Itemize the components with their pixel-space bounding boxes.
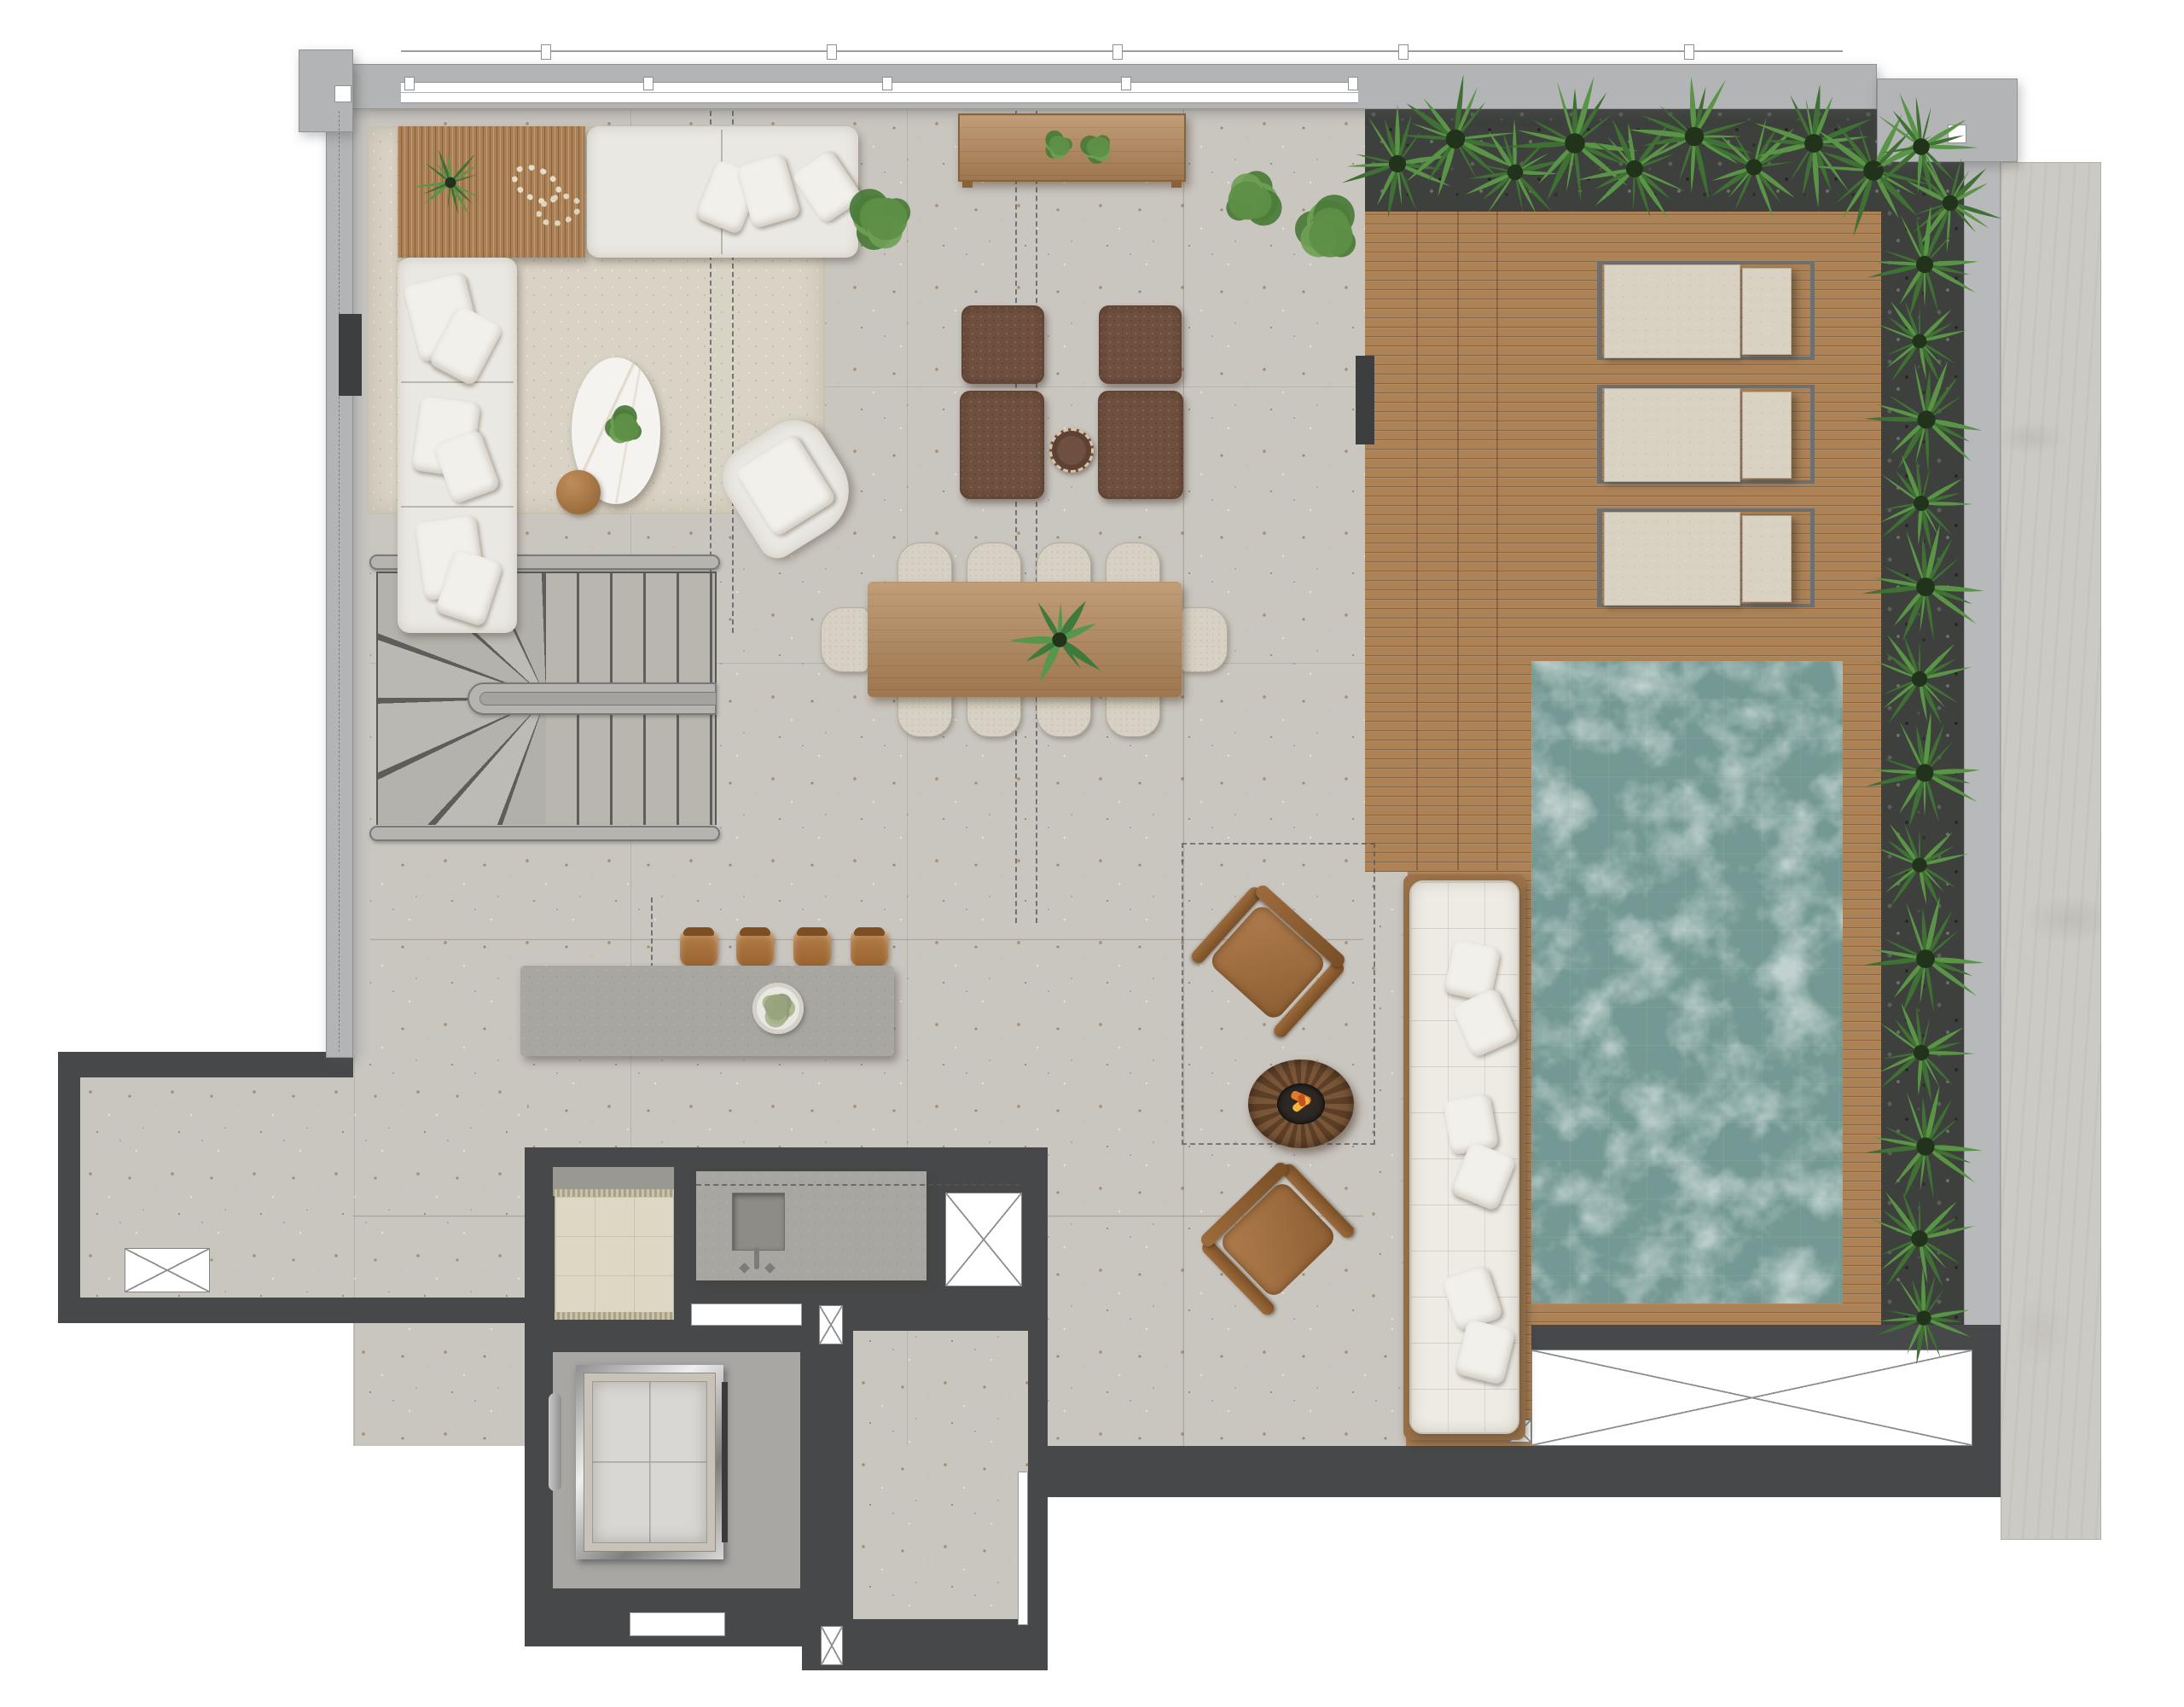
skylight-wall-right: [1972, 1350, 2001, 1446]
sun-lounger: [1604, 264, 1740, 358]
wicker-armchair: [1099, 305, 1182, 384]
projection-dashed-line: [696, 1184, 1019, 1186]
wing-wall-top: [58, 1052, 353, 1077]
wing-wall-left: [58, 1052, 80, 1323]
mullion-tick: [643, 77, 653, 90]
armchair-cushion: [735, 433, 837, 538]
bar-stool: [680, 929, 717, 967]
bar-stool: [793, 929, 831, 967]
shaft-vent-kitchen: [945, 1193, 1022, 1286]
sun-lounger-backrest: [1742, 515, 1792, 602]
wall-light-fixture: [334, 85, 351, 102]
wicker-armchair: [960, 391, 1044, 499]
mullion-tick: [1348, 77, 1358, 90]
stair-center-slot: [479, 692, 717, 705]
mat-fringe-top: [555, 1189, 674, 1197]
parapet-tick: [827, 44, 837, 60]
sun-lounger-backrest: [1742, 392, 1792, 479]
bar-stool: [851, 929, 888, 967]
pool-tile-grid: [1531, 661, 1843, 1303]
deck-seam: [1496, 209, 1498, 870]
elevator-handrail: [549, 1393, 561, 1491]
outer-wall-left: [326, 64, 353, 1058]
planting-bed-top: [1365, 104, 1964, 212]
lounger-frame: [1810, 263, 1815, 360]
lounger-frame: [1597, 510, 1602, 607]
lounger-frame: [1597, 263, 1602, 360]
parapet-band-right: [1964, 139, 2001, 1361]
side-table-round-wood: [556, 470, 601, 514]
mat-fringe-bottom: [555, 1312, 674, 1320]
wall-light-fixture: [1948, 125, 1966, 143]
parapet-tick: [1112, 44, 1123, 60]
concrete-walkway: [2001, 162, 2101, 1540]
south-corridor-floor: [853, 1286, 1028, 1619]
stair-guard-bottom: [369, 826, 720, 841]
wicker-armchair: [1098, 391, 1183, 499]
shaft-vent-small-lower: [821, 1626, 843, 1665]
south-wall-main: [1028, 1446, 2001, 1497]
door-opening-kitchen: [691, 1303, 802, 1326]
stair-flight-lower: [546, 698, 715, 825]
sauna-mat: [555, 1196, 674, 1314]
kitchen-sink: [732, 1193, 785, 1251]
bar-stool: [736, 929, 774, 967]
sink-faucet: [754, 1247, 759, 1269]
console-leg: [1171, 182, 1182, 188]
parapet-tick: [1398, 44, 1409, 60]
island-bowl: [752, 983, 804, 1034]
wicker-side-table: [1049, 428, 1094, 473]
dining-chair-end: [821, 607, 868, 672]
console-table: [958, 113, 1186, 182]
mullion-tick: [882, 77, 892, 90]
dining-table: [868, 582, 1182, 697]
planting-bed-right: [1881, 104, 1964, 1361]
wicker-armchair: [961, 305, 1044, 384]
console-leg: [962, 182, 973, 188]
stair-flight-upper: [546, 573, 715, 698]
elevator-cab-interior: [592, 1381, 707, 1543]
skylight-wall-top: [1531, 1325, 2001, 1350]
dining-chair-end: [1180, 607, 1228, 672]
parapet-tick: [1684, 44, 1694, 60]
shaft-vent-west: [125, 1248, 210, 1292]
swimming-pool: [1531, 661, 1843, 1303]
sliding-door-corridor: [1018, 1472, 1028, 1625]
lounger-frame: [1810, 510, 1815, 607]
sofa-seam: [401, 381, 514, 383]
glazing-band-top: [401, 82, 1358, 103]
lounger-frame: [1810, 386, 1815, 484]
kitchen-island: [520, 966, 894, 1056]
mullion-tick: [404, 77, 415, 90]
sofa-seam: [401, 506, 514, 508]
parapet-tick: [541, 44, 551, 60]
sun-lounger-backrest: [1742, 268, 1792, 355]
sun-lounger: [1604, 512, 1740, 606]
structural-column: [339, 314, 362, 396]
stair-winders-lower: [378, 698, 546, 825]
door-opening-elevator-lobby: [630, 1612, 725, 1636]
floor-plan-canvas: [0, 0, 2184, 1707]
projection-dashed-line: [1015, 111, 1017, 923]
outer-wall-top-right: [1877, 78, 2018, 162]
structural-column: [1356, 356, 1374, 444]
wet-kitchen-counter: [696, 1171, 926, 1280]
projection-dashed-line: [1036, 111, 1037, 923]
elevator-door-rail: [722, 1460, 728, 1542]
deck-seam: [1416, 209, 1418, 870]
lounger-frame: [1597, 386, 1602, 484]
skylight-shaft-large: [1531, 1350, 1972, 1446]
wing-wall-bottom: [58, 1298, 527, 1323]
projection-dashed-line: [651, 897, 653, 968]
shaft-vent-small-upper: [819, 1305, 843, 1344]
deck-seam: [1457, 209, 1459, 870]
mullion-tick: [1121, 77, 1131, 90]
sun-lounger: [1604, 388, 1740, 482]
elevator-door-rail: [722, 1382, 728, 1464]
wall-center-dashed-line: [339, 111, 340, 1052]
